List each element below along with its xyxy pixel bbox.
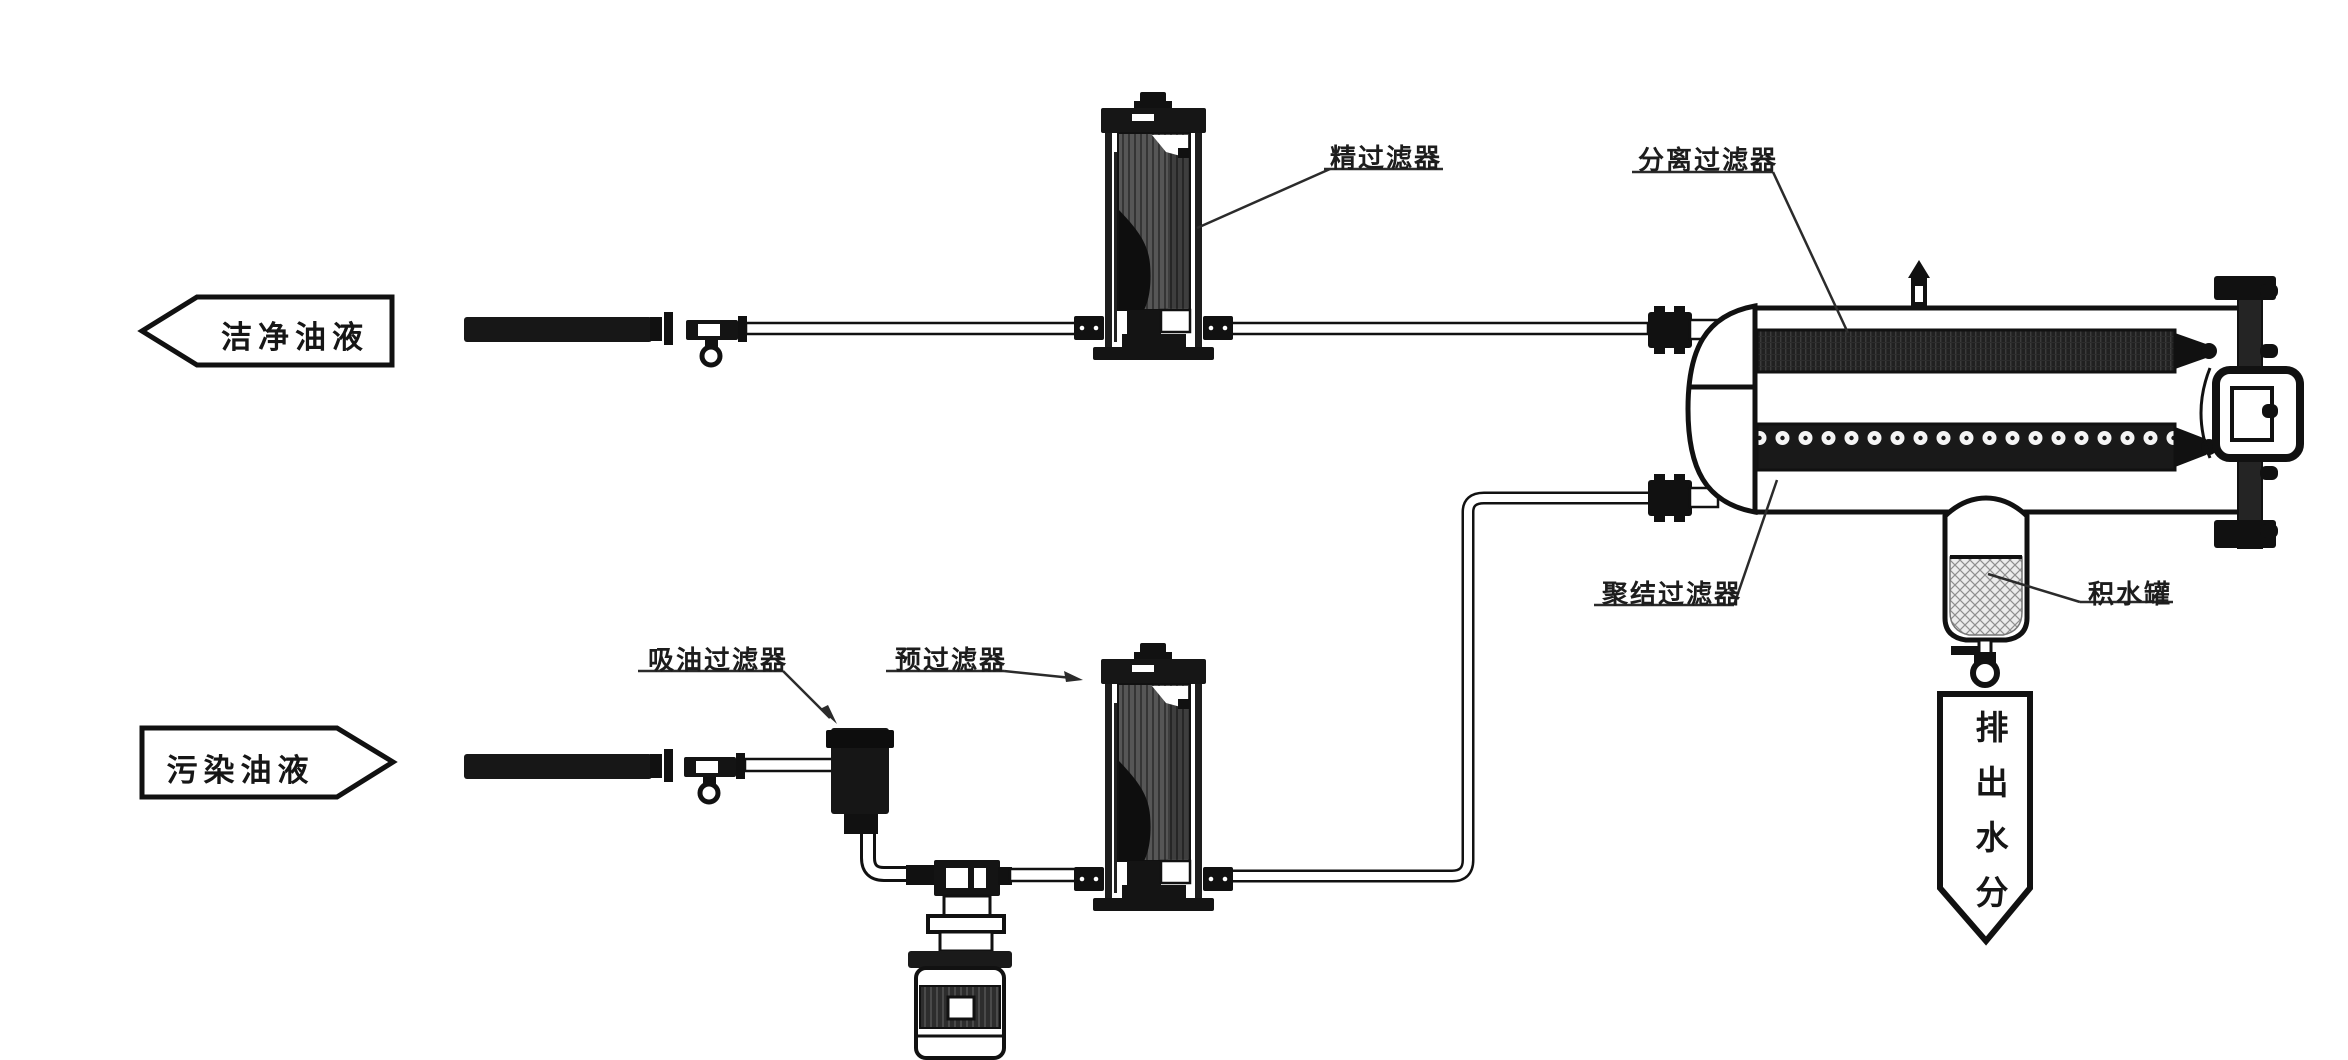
dirty-oil-pipeline bbox=[464, 728, 1076, 1058]
water-tank-label: 积水罐 bbox=[2088, 574, 2172, 611]
separation-filter-label: 分离过滤器 bbox=[1638, 140, 1778, 177]
fine-filter-label: 精过滤器 bbox=[1330, 138, 1442, 175]
ball-valve-bottom bbox=[684, 757, 736, 802]
separation-element bbox=[1757, 330, 2217, 372]
coalescing-filter-label: 聚结过滤器 bbox=[1602, 574, 1742, 611]
pump-unit bbox=[908, 860, 1012, 1058]
ball-valve-top bbox=[686, 320, 738, 365]
suction-filter-label: 吸油过滤器 bbox=[648, 640, 788, 677]
pre-filter-label: 预过滤器 bbox=[895, 640, 1007, 677]
water-out-banner-label: 排出水分 bbox=[1964, 710, 2012, 930]
end-flange-clamp bbox=[2201, 276, 2300, 548]
pre-filter bbox=[1074, 643, 1233, 911]
drain-valve bbox=[1951, 640, 1997, 685]
clean-oil-banner-label: 洁净油液 bbox=[200, 312, 390, 357]
vent-valve bbox=[1908, 260, 1930, 310]
suction-filter bbox=[826, 728, 894, 834]
water-tank bbox=[1945, 498, 2027, 685]
filtration-flow-diagram: 洁净油液 污染油液 排出水分 精过滤器 分离过滤器 吸油过滤器 预过滤器 聚结过… bbox=[0, 0, 2348, 1060]
fine-filter bbox=[1074, 92, 1233, 360]
dirty-oil-banner-label: 污染油液 bbox=[148, 745, 333, 790]
coalescing-element bbox=[1757, 424, 2217, 470]
riser-pipe bbox=[1231, 474, 1718, 876]
